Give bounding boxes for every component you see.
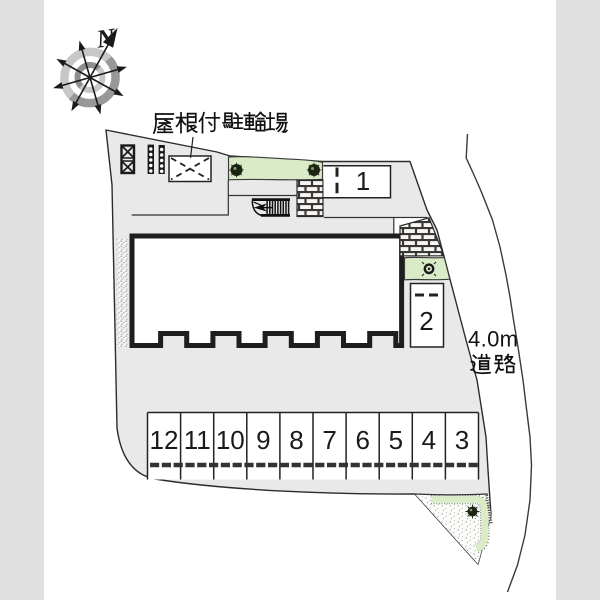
svg-text:11: 11	[184, 425, 211, 455]
svg-text:7: 7	[322, 425, 336, 455]
svg-text:2: 2	[419, 306, 433, 336]
svg-text:12: 12	[150, 425, 179, 455]
svg-text:10: 10	[216, 425, 245, 455]
svg-text:3: 3	[455, 425, 469, 455]
svg-text:6: 6	[355, 425, 369, 455]
svg-text:1: 1	[356, 166, 370, 196]
svg-text:4: 4	[422, 425, 436, 455]
svg-text:9: 9	[256, 425, 270, 455]
svg-text:8: 8	[289, 425, 303, 455]
svg-text:5: 5	[389, 425, 403, 455]
svg-text:4.0m: 4.0m	[468, 327, 518, 352]
